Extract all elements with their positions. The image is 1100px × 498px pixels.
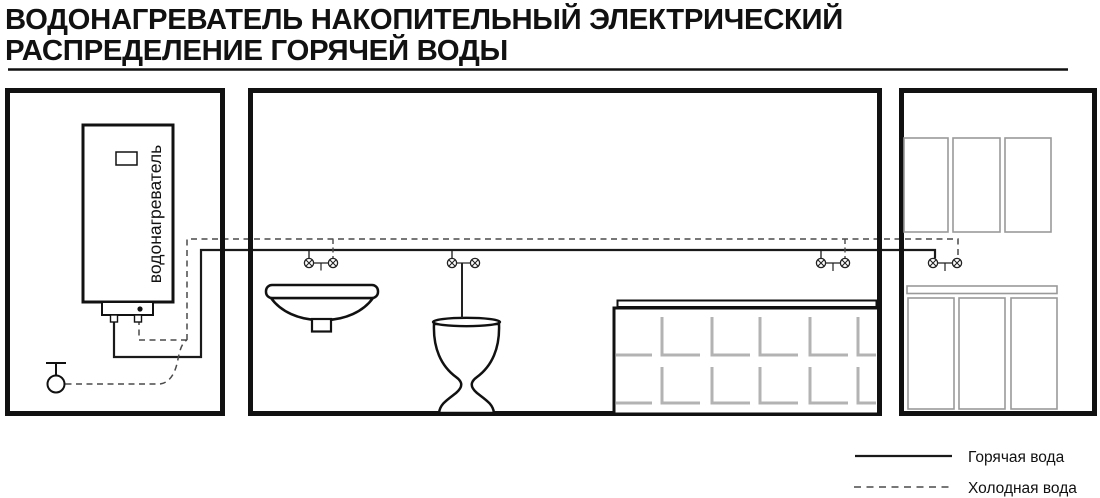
water-heater: водонагреватель bbox=[83, 125, 173, 322]
water-heater-base bbox=[102, 302, 153, 315]
base-cabinet bbox=[908, 298, 954, 409]
hot-water-drops bbox=[309, 250, 821, 258]
title-block: ВОДОНАГРЕВАТЕЛЬ НАКОПИТЕЛЬНЫЙ ЭЛЕКТРИЧЕС… bbox=[5, 3, 1068, 70]
base-cabinets bbox=[908, 298, 1057, 409]
countertop bbox=[907, 286, 1057, 294]
legend-cold-label: Холодная вода bbox=[968, 480, 1077, 497]
bathtub-front bbox=[614, 308, 879, 414]
water-heater-label: водонагреватель bbox=[145, 145, 165, 283]
page-title-line1: ВОДОНАГРЕВАТЕЛЬ НАКОПИТЕЛЬНЫЙ ЭЛЕКТРИЧЕС… bbox=[5, 3, 843, 36]
bath-hot-tap-icon bbox=[816, 258, 825, 267]
sink-drain bbox=[312, 319, 331, 332]
bath-cold-tap-icon bbox=[840, 258, 849, 267]
sink-mixer-bar bbox=[314, 263, 329, 271]
sink-mixer bbox=[304, 258, 337, 270]
sink-rim bbox=[266, 285, 378, 298]
bathtub-tiled-panel bbox=[614, 301, 879, 415]
bathtub-lip bbox=[618, 301, 877, 308]
legend-hot-label: Горячая вода bbox=[968, 449, 1065, 466]
kitchen-wall bbox=[902, 91, 1095, 414]
cold-water-drops bbox=[333, 239, 845, 258]
bath-mixer-bar bbox=[826, 263, 841, 271]
boiler-room: водонагреватель bbox=[8, 91, 223, 414]
plumbing-diagram: ВОДОНАГРЕВАТЕЛЬ НАКОПИТЕЛЬНЫЙ ЭЛЕКТРИЧЕС… bbox=[0, 0, 1100, 498]
legend: Горячая вода Холодная вода bbox=[854, 449, 1077, 497]
wall-cabinets bbox=[904, 138, 1051, 232]
bidet bbox=[433, 318, 500, 413]
wall-cabinet bbox=[953, 138, 1000, 232]
bidet-cold-tap-icon bbox=[470, 258, 479, 267]
base-cabinet bbox=[959, 298, 1005, 409]
cold-water-heater-branch bbox=[139, 322, 187, 340]
wall-cabinet bbox=[904, 138, 948, 232]
sink-bowl bbox=[271, 298, 373, 320]
main-shutoff-valve-icon bbox=[46, 363, 66, 393]
bidet-hot-tap-icon bbox=[447, 258, 456, 267]
sink-cold-tap-icon bbox=[328, 258, 337, 267]
bidet-body bbox=[434, 324, 499, 413]
kitchen-cold-tap-icon bbox=[952, 258, 961, 267]
sink-hot-tap-icon bbox=[304, 258, 313, 267]
cold-inlet-nub bbox=[135, 315, 142, 322]
hot-outlet-nub bbox=[111, 315, 118, 322]
wall-cabinet bbox=[1005, 138, 1051, 232]
schematic-page: ВОДОНАГРЕВАТЕЛЬ НАКОПИТЕЛЬНЫЙ ЭЛЕКТРИЧЕС… bbox=[0, 0, 1100, 498]
bathroom bbox=[251, 91, 880, 415]
kitchen-hot-tap-icon bbox=[928, 258, 937, 267]
cold-water-crossover-hop bbox=[160, 340, 187, 384]
bath-mixer bbox=[816, 258, 849, 271]
sink bbox=[266, 285, 378, 332]
kitchen-mixer bbox=[928, 258, 961, 271]
water-heater-display bbox=[116, 152, 137, 165]
bidet-rim bbox=[433, 318, 500, 326]
base-cabinet bbox=[1011, 298, 1057, 409]
heater-indicator-dot bbox=[137, 306, 142, 311]
kitchen-mixer-bar bbox=[938, 263, 953, 271]
page-title-line2: РАСПРЕДЕЛЕНИЕ ГОРЯЧЕЙ ВОДЫ bbox=[5, 34, 508, 67]
kitchen bbox=[902, 91, 1095, 414]
bidet-mixer bbox=[447, 258, 479, 318]
